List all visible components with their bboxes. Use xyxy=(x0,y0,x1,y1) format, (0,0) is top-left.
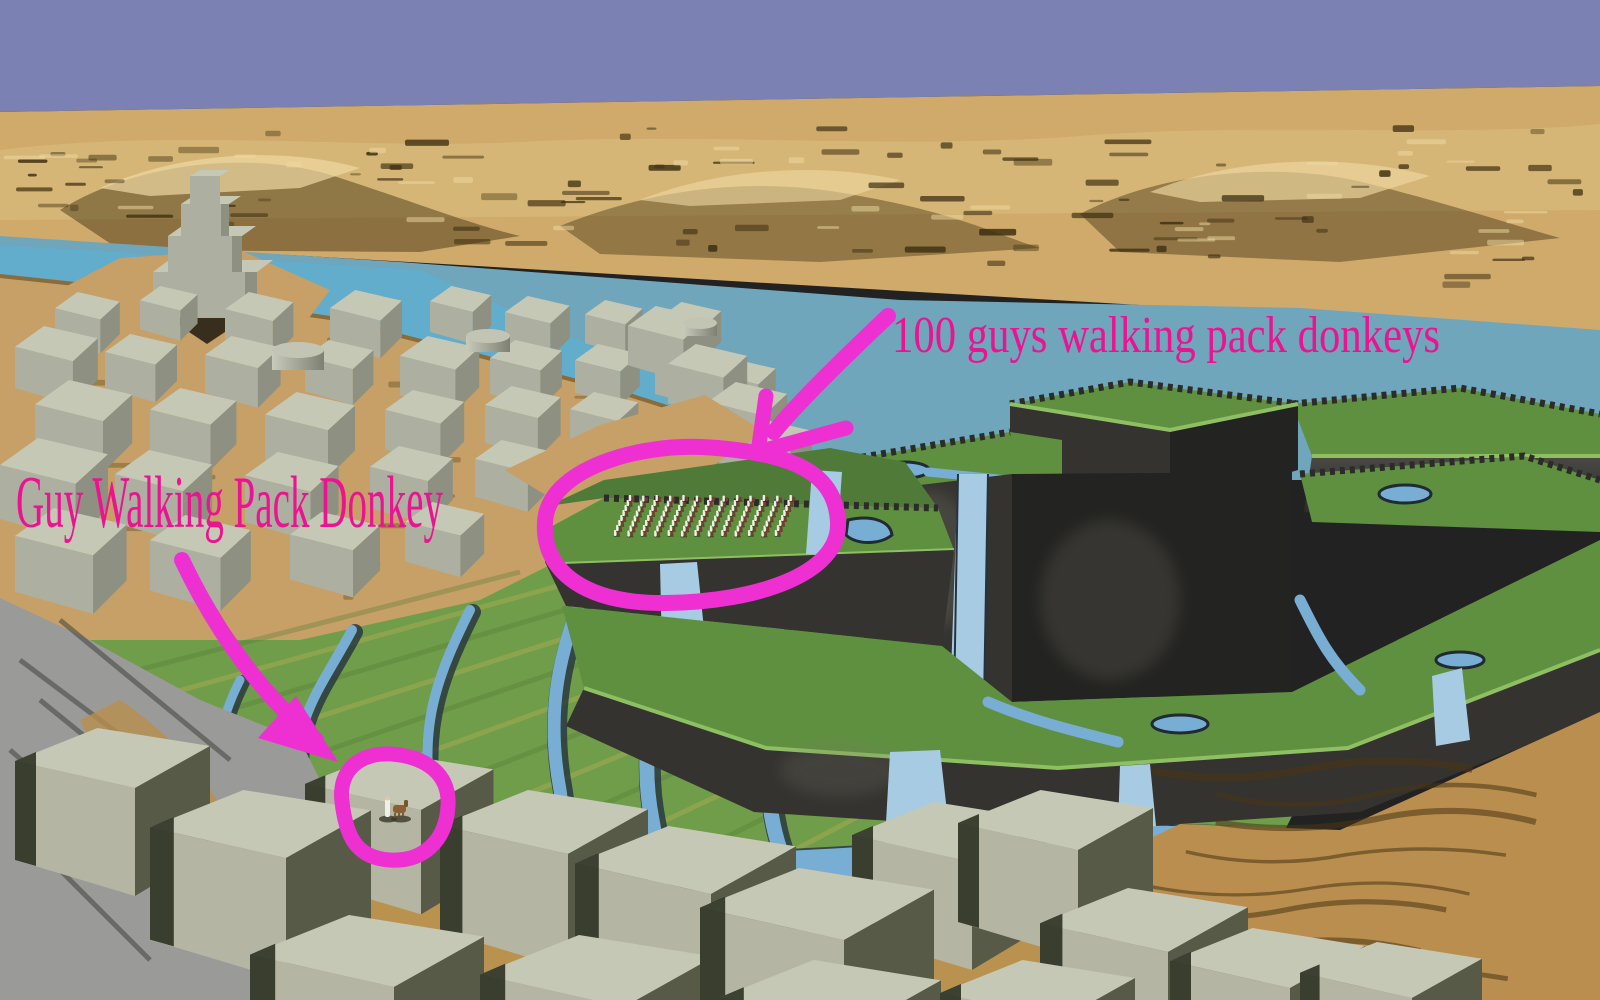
scene-canvas: 100 guys walking pack donkeys Guy Walkin… xyxy=(0,0,1600,1000)
guy-sprite xyxy=(385,799,390,817)
formation-annotation-label: 100 guys walking pack donkeys xyxy=(892,307,1440,364)
scene-3d-render: 100 guys walking pack donkeys Guy Walkin… xyxy=(0,0,1600,1000)
donkey-sprite xyxy=(393,805,406,813)
single-annotation-label: Guy Walking Pack Donkey xyxy=(16,462,443,544)
